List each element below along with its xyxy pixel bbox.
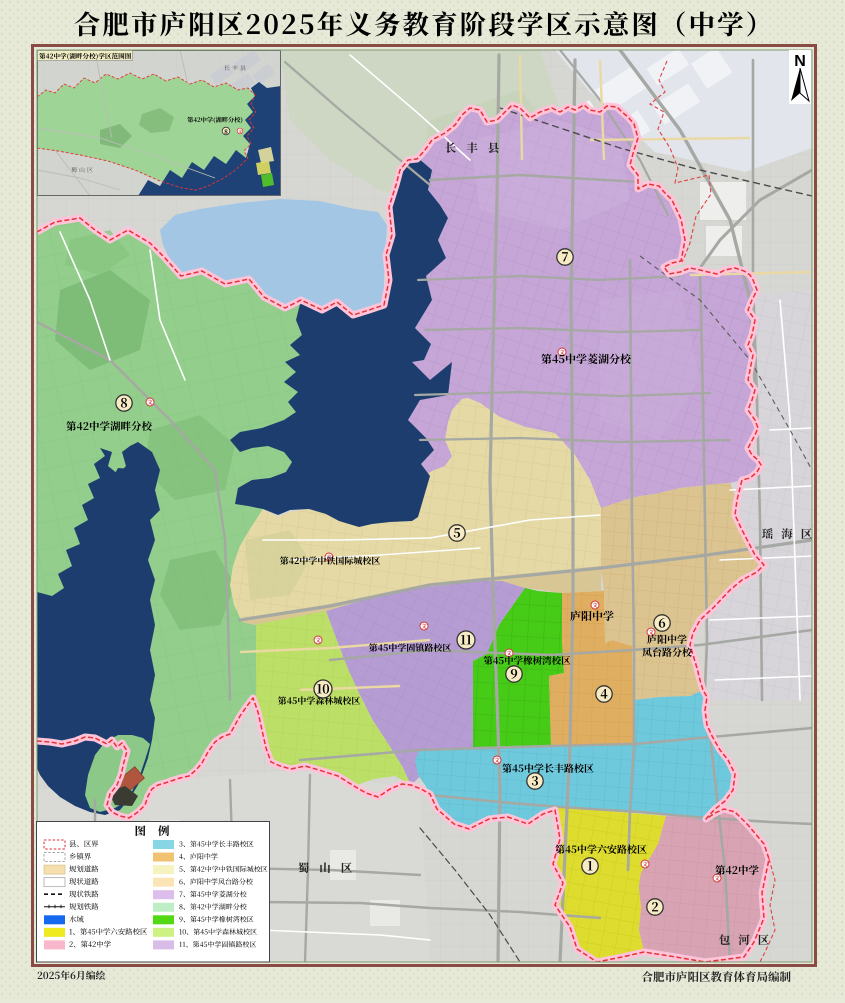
svg-text:N: N xyxy=(794,53,806,70)
